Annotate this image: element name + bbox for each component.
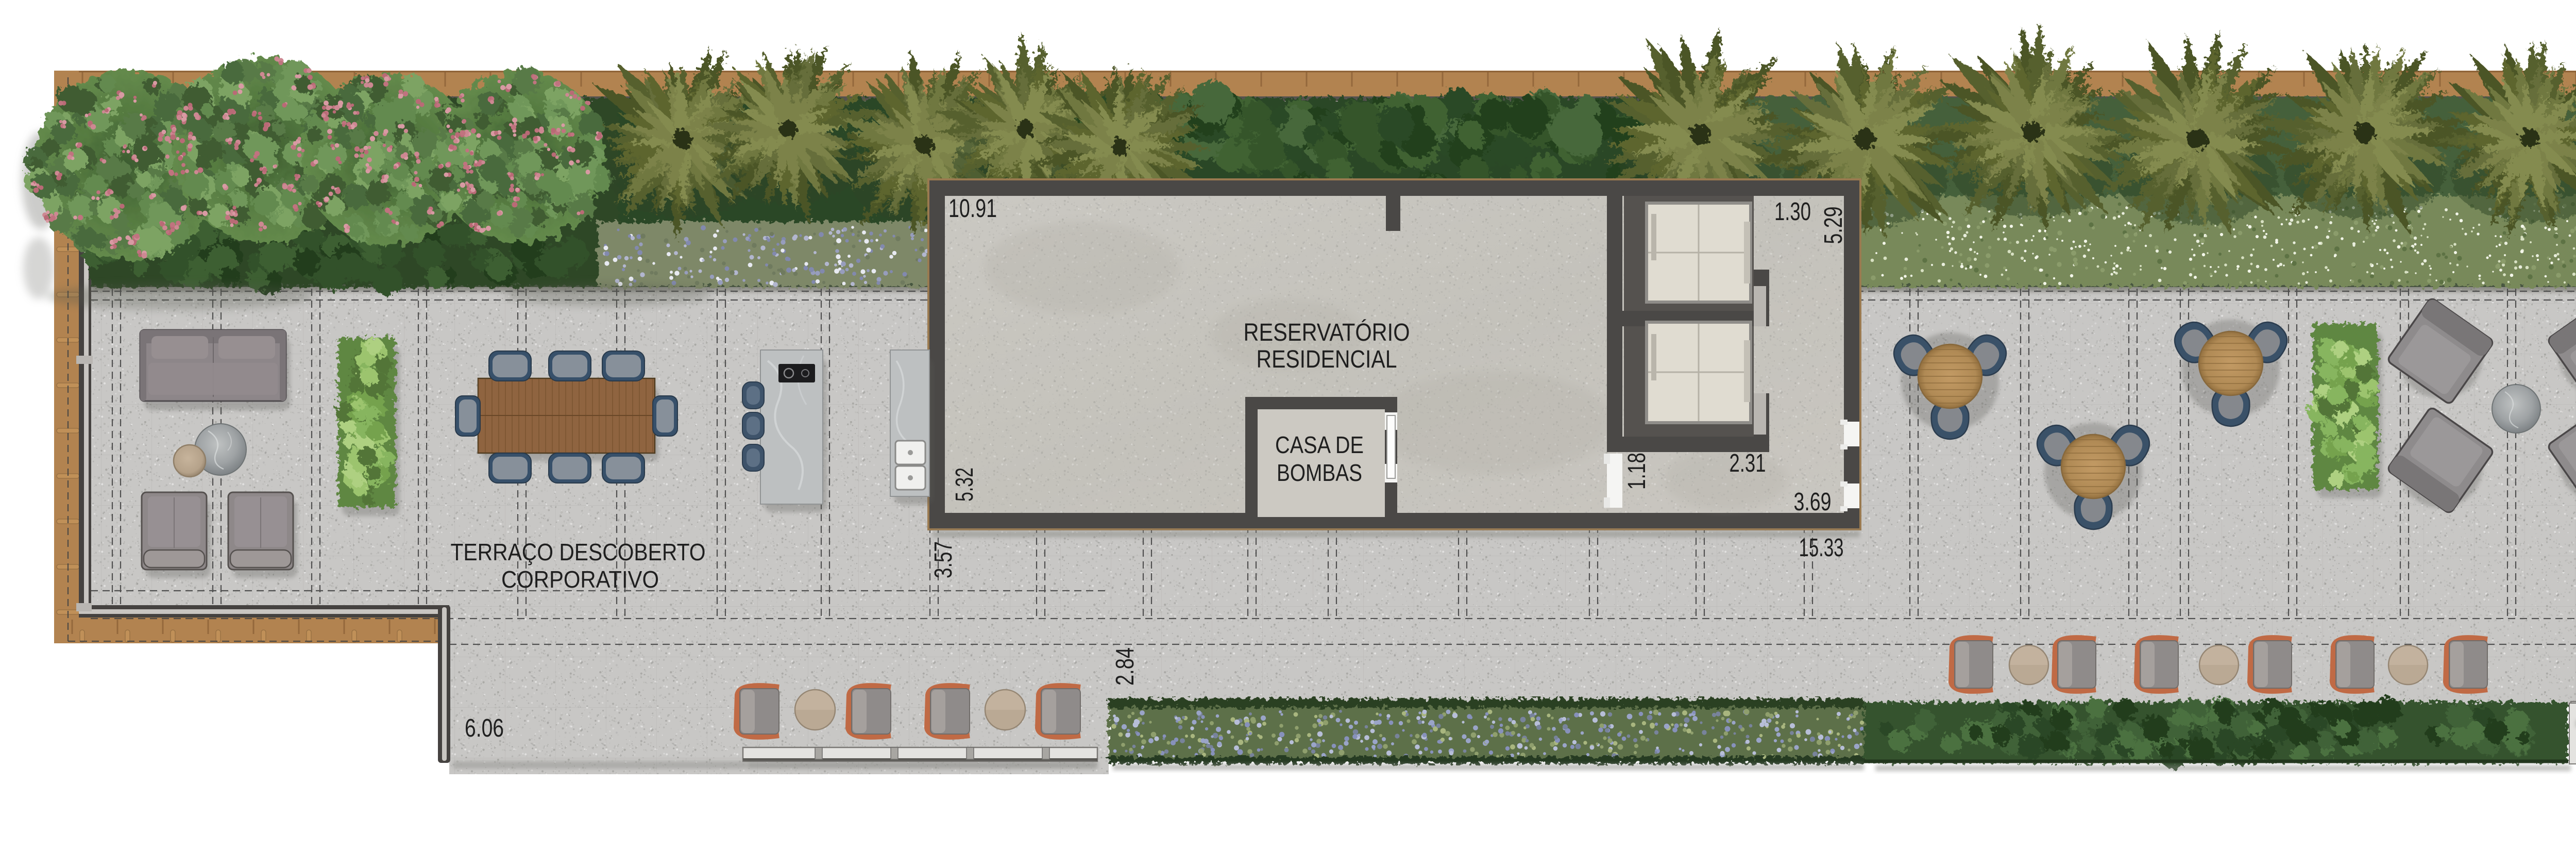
svg-text:CASA DE: CASA DE [1275,431,1364,458]
svg-text:RESIDENCIAL: RESIDENCIAL [1257,346,1397,373]
svg-text:2.31: 2.31 [1730,449,1766,477]
svg-text:6.06: 6.06 [465,714,504,742]
svg-text:5.29: 5.29 [1820,207,1848,244]
svg-text:10.91: 10.91 [948,194,997,223]
svg-text:1.30: 1.30 [1774,198,1811,226]
svg-text:3.69: 3.69 [1794,488,1832,516]
svg-text:RESERVATÓRIO: RESERVATÓRIO [1244,319,1410,346]
svg-text:3.57: 3.57 [930,541,957,578]
svg-text:1.18: 1.18 [1623,453,1651,490]
svg-text:BOMBAS: BOMBAS [1277,459,1362,486]
svg-text:5.32: 5.32 [951,468,978,502]
svg-text:2.84: 2.84 [1111,647,1139,686]
svg-text:15.33: 15.33 [1799,534,1844,562]
